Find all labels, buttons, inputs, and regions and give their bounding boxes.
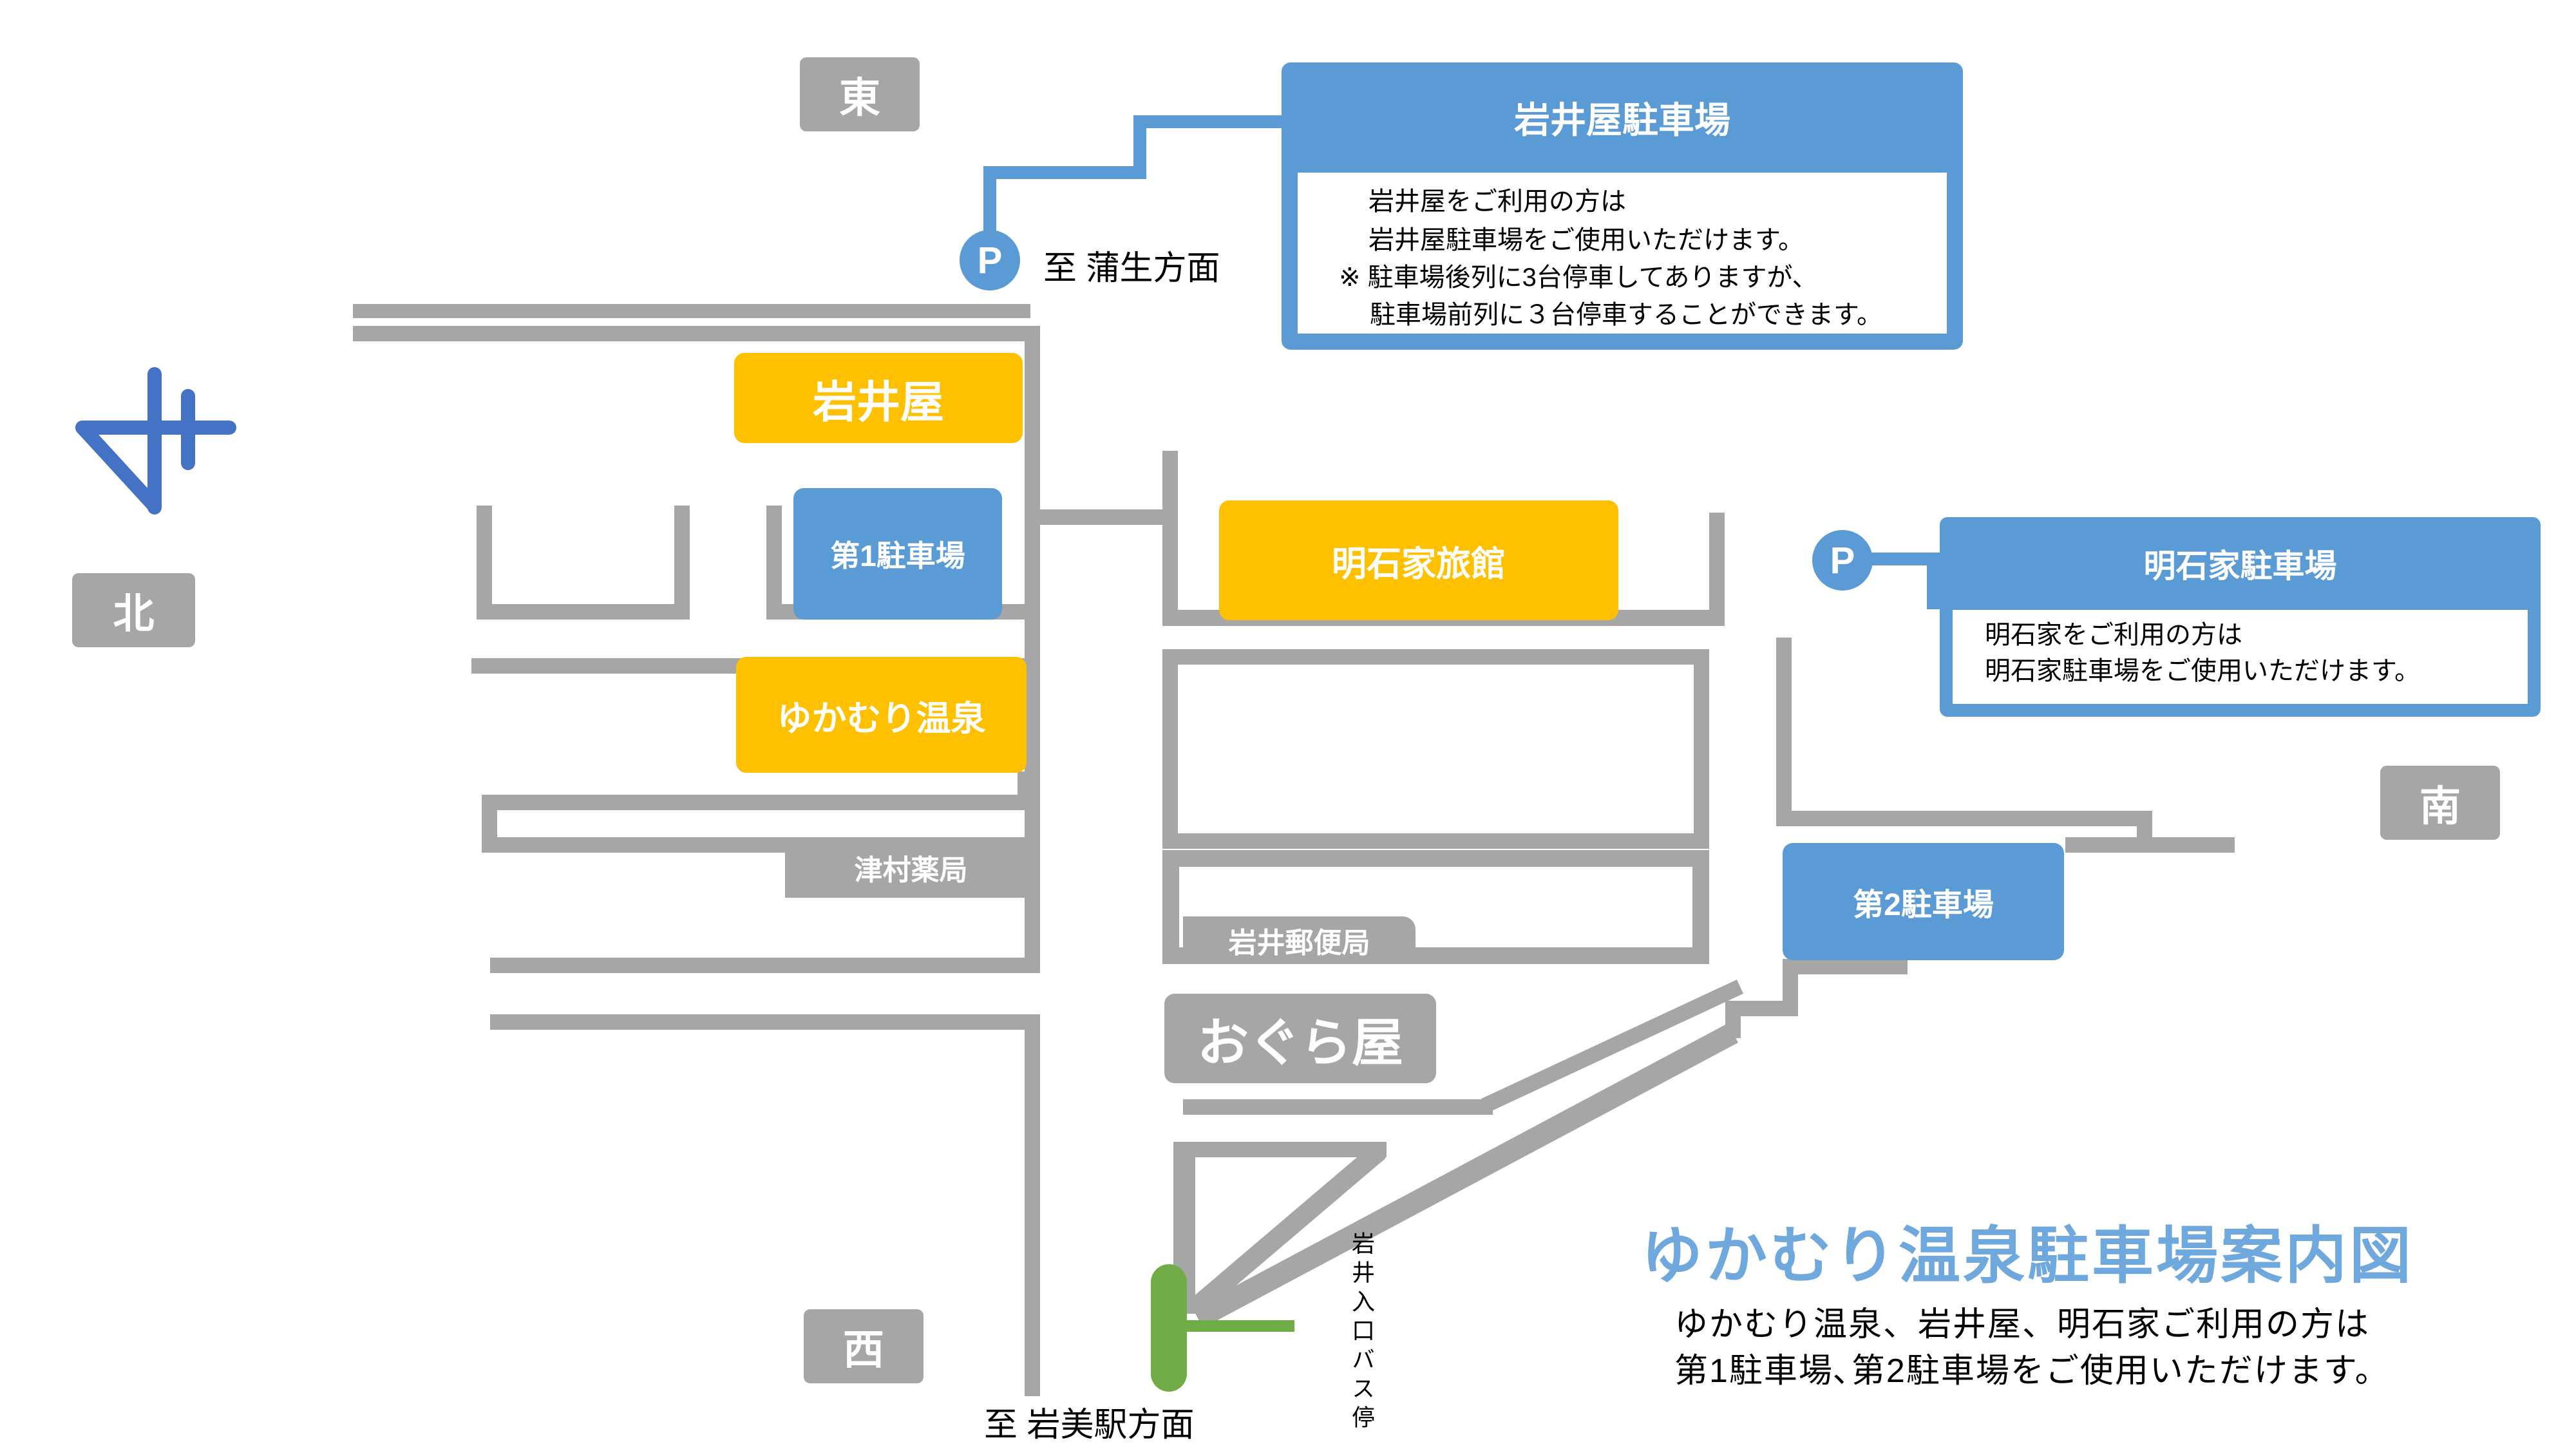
road-east-horizontal-2	[2065, 837, 2235, 853]
place-iwai-post-office-label: 岩井郵便局	[1229, 920, 1370, 961]
road-east-vertical	[1776, 638, 1792, 826]
road-tsumura-bottom	[490, 958, 1040, 973]
callout-iwaiya-parking-body: 岩井屋をご利用の方は 岩井屋駐車場をご使用いただけます。 ※ 駐車場後列に3台停…	[1298, 173, 1947, 334]
road-east-horizontal	[1776, 811, 2152, 826]
parking-icon-iwaiya: P	[960, 230, 1020, 290]
road-p2-band1	[1783, 959, 1908, 974]
direction-south: 南	[2380, 766, 2500, 840]
place-parking1: 第1駐車場	[793, 488, 1002, 620]
block-mid-top	[1162, 649, 1709, 665]
direction-north-label: 北	[113, 581, 155, 640]
block-post-top	[1162, 850, 1709, 867]
callout-iwaiya-parking: 岩井屋駐車場 岩井屋をご利用の方は 岩井屋駐車場をご使用いただけます。 ※ 駐車…	[1282, 62, 1963, 350]
place-yukamuri-onsen: ゆかむり温泉	[736, 657, 1027, 773]
direction-west-label: 西	[843, 1317, 884, 1376]
road-u1-left	[477, 506, 492, 620]
road-oguraya-bottom	[1183, 1099, 1493, 1115]
map-subtitle-line1: ゆかむり温泉、岩井屋、明石家ご利用の方は	[1674, 1297, 2370, 1345]
place-parking1-label: 第1駐車場	[830, 533, 965, 575]
road-triangle-top	[1173, 1142, 1387, 1157]
map-canvas: 東 北 西 南 岩井屋 第1駐車場 ゆかむり温泉 明石家旅館 第2駐車場 津村薬…	[0, 0, 2576, 1449]
direction-west: 西	[804, 1309, 923, 1383]
block-mid-bottom	[1162, 833, 1709, 849]
block-post-left	[1162, 850, 1179, 964]
place-tsumura-pharmacy-label: 津村薬局	[855, 847, 968, 888]
bus-stop-pointer-line	[1187, 1320, 1294, 1332]
callout2-connector-v	[1927, 553, 1940, 609]
compass-icon	[82, 374, 229, 507]
road-h4	[482, 795, 1040, 810]
callout-iwaiya-note2: 駐車場前列に３台停車することができます。	[1370, 300, 1947, 330]
place-akashiya-ryokan-label: 明石家旅館	[1332, 535, 1506, 586]
road-u2-left	[766, 506, 782, 620]
annotation-bus-stop: 岩井入口バス停	[1345, 1231, 1378, 1449]
callout-akashiya-parking-title: 明石家駐車場	[1940, 517, 2541, 610]
callout1-connector-v2	[983, 166, 996, 234]
annotation-to-iwami-station: 至 岩美駅方面	[984, 1397, 1194, 1446]
parking-icon-akashiya: P	[1812, 530, 1873, 591]
road-akashiya-right	[1709, 513, 1725, 626]
parking-icon-akashiya-letter: P	[1830, 539, 1855, 582]
direction-north: 北	[72, 573, 195, 647]
road-top-lower	[353, 326, 1040, 341]
callout-akashiya-parking-title-text: 明石家駐車場	[2144, 540, 2337, 587]
road-akashiya-left	[1162, 451, 1178, 626]
place-parking2: 第2駐車場	[1783, 843, 2064, 960]
callout-iwaiya-line1: 岩井屋をご利用の方は	[1368, 187, 1947, 216]
callout-iwaiya-note1: ※ 駐車場後列に3台停車してありますが、	[1339, 263, 1947, 292]
direction-east-label: 東	[839, 65, 880, 124]
callout-iwaiya-line2: 岩井屋駐車場をご使用いただけます。	[1368, 225, 1947, 255]
place-tsumura-pharmacy: 津村薬局	[785, 837, 1037, 898]
callout-iwaiya-parking-title-text: 岩井屋駐車場	[1514, 91, 1730, 144]
direction-south-label: 南	[2420, 773, 2461, 833]
place-akashiya-ryokan: 明石家旅館	[1219, 500, 1618, 620]
road-u1-bottom	[477, 604, 690, 620]
map-subtitle-line2: 第1駐車場､第2駐車場をご使用いただけます。	[1674, 1343, 2390, 1392]
callout-iwaiya-parking-title: 岩井屋駐車場	[1282, 62, 1963, 173]
callout1-connector-h2	[983, 166, 1146, 179]
place-oguraya: おぐら屋	[1164, 994, 1436, 1083]
callout-akashiya-line1: 明石家をご利用の方は	[1985, 620, 2528, 650]
annotation-to-gamou: 至 蒲生方面	[1043, 241, 1220, 289]
place-iwaiya: 岩井屋	[734, 353, 1023, 443]
road-main-vertical-lower	[1025, 1014, 1040, 1396]
place-iwai-post-office: 岩井郵便局	[1183, 916, 1416, 964]
callout1-connector-h1	[1137, 115, 1282, 128]
direction-east: 東	[800, 57, 920, 131]
road-west-lower	[490, 1014, 1040, 1030]
block-post-right	[1692, 850, 1709, 964]
road-u1-right	[674, 506, 690, 620]
road-connector-east	[1040, 509, 1162, 525]
place-oguraya-label: おぐら屋	[1197, 1001, 1403, 1076]
callout-akashiya-parking: 明石家駐車場 明石家をご利用の方は 明石家駐車場をご使用いただけます。	[1940, 517, 2541, 717]
map-title: ゆかむり温泉駐車場案内図	[1641, 1206, 2414, 1295]
place-iwaiya-label: 岩井屋	[813, 366, 944, 430]
callout-akashiya-parking-body: 明石家をご利用の方は 明石家駐車場をご使用いただけます。	[1953, 610, 2528, 704]
place-yukamuri-onsen-label: ゆかむり温泉	[777, 690, 986, 741]
parking-icon-iwaiya-letter: P	[978, 239, 1003, 282]
place-parking2-label: 第2駐車場	[1853, 879, 1994, 924]
bus-stop-marker	[1151, 1264, 1187, 1392]
road-stub-yukamuri	[1018, 772, 1033, 797]
block-mid-left	[1162, 649, 1178, 849]
block-mid-right	[1694, 649, 1709, 849]
callout-akashiya-line2: 明石家駐車場をご使用いただけます。	[1985, 656, 2528, 686]
road-top-upper	[353, 304, 1030, 318]
